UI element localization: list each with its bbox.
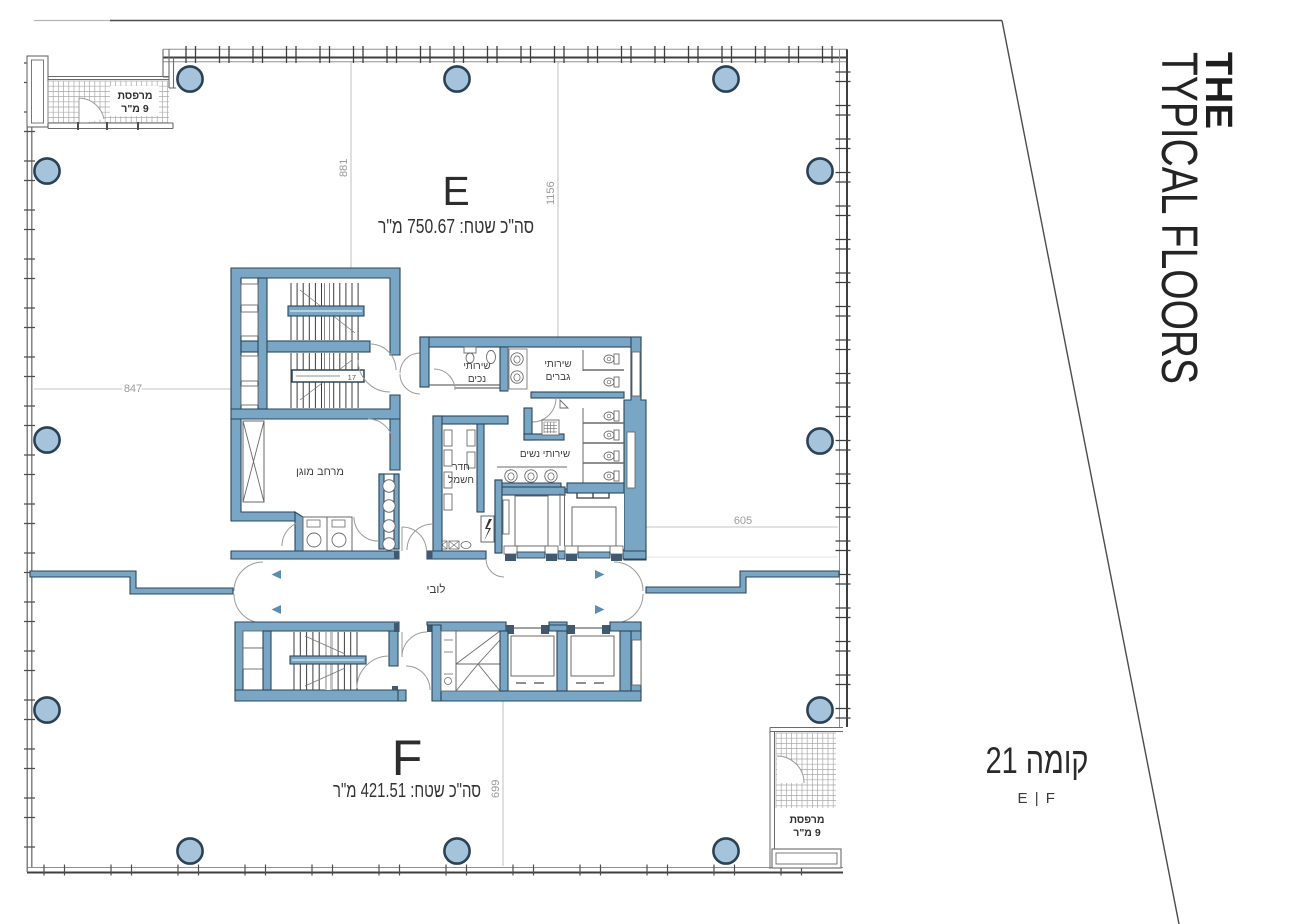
svg-text:17: 17 [348, 373, 356, 382]
svg-text:סה"כ שטח: 421.51 מ"ר: סה"כ שטח: 421.51 מ"ר [333, 780, 481, 802]
svg-text:חשמל: חשמל [448, 474, 474, 486]
svg-text:שירותי: שירותי [463, 361, 490, 372]
svg-text:קומה 21: קומה 21 [986, 741, 1089, 782]
svg-text:E | F: E | F [1018, 790, 1057, 807]
svg-text:לובי: לובי [427, 583, 446, 596]
svg-text:שירותי נשים: שירותי נשים [520, 449, 570, 460]
svg-text:TYPICAL FLOORS: TYPICAL FLOORS [1151, 52, 1208, 384]
svg-text:נכים: נכים [468, 374, 486, 385]
svg-text:881: 881 [338, 159, 350, 177]
svg-text:‏9 מ"ר: ‏9 מ"ר [121, 103, 149, 115]
svg-text:מרפסת: מרפסת [790, 814, 825, 826]
svg-text:‏9 מ"ר: ‏9 מ"ר [793, 827, 821, 839]
svg-text:שירותי: שירותי [544, 359, 571, 370]
svg-text:חדר: חדר [452, 462, 469, 473]
svg-text:E: E [442, 168, 469, 214]
svg-text:מרפסת: מרפסת [118, 90, 153, 102]
svg-text:1156: 1156 [545, 181, 557, 205]
svg-text:מרחב מוגן: מרחב מוגן [296, 466, 344, 478]
svg-text:סה"כ שטח: 750.67 מ"ר: סה"כ שטח: 750.67 מ"ר [378, 216, 534, 238]
svg-text:F: F [392, 730, 423, 786]
svg-text:699: 699 [490, 780, 502, 798]
svg-text:605: 605 [734, 515, 752, 527]
svg-text:גברים: גברים [546, 372, 571, 383]
svg-text:847: 847 [124, 383, 142, 395]
